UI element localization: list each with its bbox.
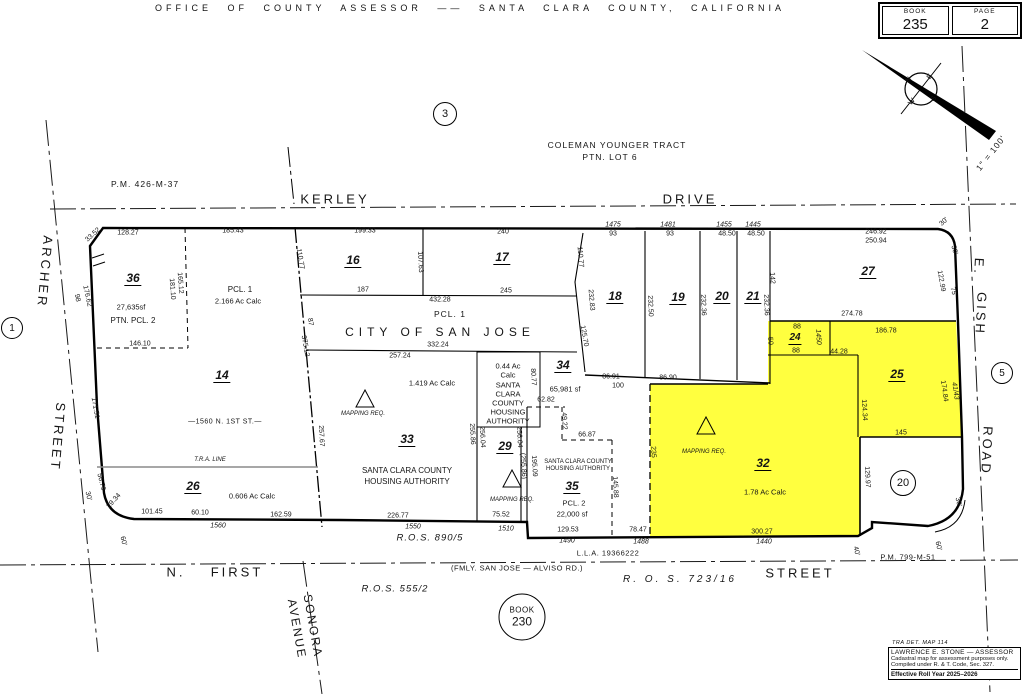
dimension-label: 232.36 — [699, 294, 707, 316]
address-label: 1550 — [405, 524, 421, 531]
roll-year-note: Effective Roll Year 2025–2026 — [891, 669, 1018, 678]
dimension-label: 250.94 — [865, 238, 886, 245]
dimension-label: 240 — [497, 229, 509, 236]
fmly-alviso-label: (FMLY. SAN JOSE — ALVISO RD.) — [451, 564, 583, 572]
parcel-16-number: 16 — [344, 254, 361, 268]
pm-426-label: P.M. 426-M-37 — [111, 180, 179, 189]
parcel-18-number: 18 — [606, 290, 623, 304]
compass-cross-line — [901, 63, 941, 114]
page-number: 2 — [953, 16, 1018, 33]
parcel-14-number: 14 — [213, 369, 230, 383]
street-label-gish: GISH — [973, 292, 988, 336]
dimension-label: 98 — [73, 293, 81, 302]
address-label: 1450 — [814, 329, 822, 345]
dimension-label: 88 — [793, 324, 801, 331]
address-label: 1445 — [745, 222, 761, 229]
parcel-25-number: 25 — [888, 368, 905, 382]
adjacent-page-ref-3: 3 — [433, 102, 457, 126]
parcel-27-number: 27 — [859, 265, 876, 279]
assessor-name: LAWRENCE E. STONE — ASSESSOR — [891, 649, 1018, 656]
dimension-label: 245 — [500, 288, 512, 295]
highlighted-parcels — [650, 321, 962, 536]
mapping-req-33: MAPPING REQ. — [341, 411, 385, 417]
ros-890-label: R.O.S. 890/5 — [397, 533, 464, 543]
adjacent-page-ref-1: 1 — [1, 317, 23, 339]
dimension-label: 186.78 — [875, 328, 896, 335]
dimension-label: (255.86) — [519, 453, 527, 479]
parcel-32-number: 32 — [754, 457, 771, 471]
book-230-number: 230 — [512, 616, 532, 628]
dimension-label: 256.04 — [515, 426, 523, 448]
parcel-29-number: 29 — [496, 440, 513, 454]
parcel-33-number: 33 — [398, 433, 415, 447]
dimension-label: 86.91 — [602, 374, 620, 381]
highlight-parcels-24-25-32 — [650, 321, 962, 536]
assessor-stamp: TRA DET. MAP 114 LAWRENCE E. STONE — ASS… — [888, 640, 1021, 680]
parcel-33-area: 1.419 Ac Calc — [409, 379, 455, 387]
dimension-label: 162.59 — [270, 512, 291, 519]
dimension-label: 100 — [612, 383, 624, 390]
mapping-req-triangle-29 — [503, 470, 521, 487]
north-arrow-blade — [862, 50, 996, 140]
street-label-n-first: N. — [167, 566, 186, 579]
edge-tick-1 — [92, 254, 104, 258]
adjacent-book-230-ref: BOOK 230 — [499, 594, 546, 641]
assessor-stamp-box: LAWRENCE E. STONE — ASSESSOR Cadastral m… — [888, 647, 1021, 680]
map-linework — [0, 0, 1024, 694]
parcel-35-area: 22,000 sf — [557, 510, 588, 518]
parcel-36-number: 36 — [124, 272, 141, 286]
dimension-label: 48.50 — [718, 231, 736, 238]
address-label: 1488 — [633, 539, 649, 546]
pcl-1-label: PCL. 1 — [434, 310, 466, 319]
parcel-14-east-line — [295, 227, 322, 527]
parcel-35-number: 35 — [563, 480, 580, 494]
map-label: SANTA — [496, 381, 520, 389]
dimension-label: 66.87 — [578, 432, 596, 439]
parcel-36-area: 27,635sf — [117, 303, 146, 311]
tra-det-map-note: TRA DET. MAP 114 — [892, 640, 1021, 646]
gish-road-centerline — [962, 46, 990, 692]
north-arrow — [862, 50, 996, 140]
dimension-label: 78.47 — [629, 527, 647, 534]
book-page-box: BOOK 235 PAGE 2 — [878, 2, 1022, 39]
n-1st-address-label: —1560 N. 1ST ST.— — [188, 419, 262, 426]
tract-label: COLEMAN YOUNGER TRACT — [548, 141, 687, 150]
parcel-32-area: 1.78 Ac Calc — [744, 488, 786, 496]
dimension-label: 300.27 — [751, 529, 772, 536]
book-label: BOOK — [883, 8, 948, 15]
dimension-label: 246.92 — [865, 229, 886, 236]
dimension-label: 86.90 — [659, 375, 677, 382]
parcel-26-area: 0.606 Ac Calc — [229, 492, 275, 500]
stamp-code-note: Compiled under R. & T. Code, Sec. 327. — [891, 662, 1018, 668]
dimension-label: 142 — [768, 272, 775, 284]
address-label: 1481 — [660, 222, 676, 229]
dimension-label: 48.50 — [747, 231, 765, 238]
street-label-first-street: STREET — [765, 567, 834, 580]
dimension-label: 62.82 — [537, 397, 555, 404]
parcel-36-east-dashed — [185, 228, 188, 348]
dimension-label: 226.77 — [387, 513, 408, 520]
dimension-label: 88 — [792, 348, 800, 355]
lla-label: L.L.A. 19366222 — [577, 549, 640, 557]
dimension-label: 332.24 — [427, 342, 448, 349]
dimension-label: 274.78 — [841, 311, 862, 318]
parcel-26-number: 26 — [184, 480, 201, 494]
tra-line-label: T.R.A. LINE — [194, 457, 225, 463]
parcel-34-number: 34 — [554, 359, 571, 373]
street-label-kerley: KERLEY — [300, 193, 369, 206]
parcel-33-owner: SANTA CLARA COUNTY — [362, 467, 452, 475]
mapping-req-triangle-33 — [356, 390, 374, 407]
page-title: OFFICE OF COUNTY ASSESSOR —— SANTA CLARA… — [155, 3, 785, 13]
dimension-label: 129.97 — [863, 466, 871, 488]
dimension-label: 107.63 — [416, 251, 424, 273]
address-label: 1475 — [605, 222, 621, 229]
address-label: 1440 — [756, 539, 772, 546]
parcel-34-area: 65,981 sf — [550, 385, 581, 393]
parcel-33-owner2: HOUSING AUTHORITY — [364, 478, 449, 486]
book-230-label: BOOK — [509, 607, 534, 615]
tract-lot-label: PTN. LOT 6 — [582, 153, 637, 162]
dimension-label: 257.24 — [389, 353, 410, 360]
dimension-label: 146.10 — [129, 341, 150, 348]
ros-555-label: R.O.S. 555/2 — [362, 584, 429, 594]
assessor-map-page: OFFICE OF COUNTY ASSESSOR —— SANTA CLARA… — [0, 0, 1024, 694]
dimension-label: 93 — [609, 231, 617, 238]
map-label: HOUSING — [490, 408, 525, 416]
dimension-label: 49.22 — [560, 412, 568, 430]
street-label-gish-road: ROAD — [979, 426, 995, 476]
page-cell: PAGE 2 — [952, 6, 1019, 35]
parcel-29-owner: AUTHORITY — [486, 417, 529, 425]
dimension-label: 232.50 — [646, 295, 654, 317]
dimension-label: 145 — [895, 430, 907, 437]
dimension-label: 256.04 — [478, 426, 486, 448]
mapping-req-29: MAPPING REQ. — [490, 497, 534, 503]
adjacent-page-ref-5: 5 — [991, 362, 1013, 384]
dimension-label: 129.53 — [557, 527, 578, 534]
book-cell: BOOK 235 — [882, 6, 949, 35]
dimension-label: 257.67 — [317, 425, 325, 447]
dimension-label: 50 — [766, 337, 773, 345]
page-label: PAGE — [953, 8, 1018, 15]
dimension-label: 185.43 — [222, 228, 243, 235]
dimension-label: 44.28 — [830, 349, 848, 356]
dimension-label: 145.88 — [611, 476, 619, 498]
dimension-label: 75.52 — [492, 512, 510, 519]
dimension-label: 235 — [649, 446, 657, 458]
parcel-24-number: 24 — [788, 333, 801, 345]
dimension-label: 93 — [666, 231, 674, 238]
dimension-label: 101.45 — [141, 509, 162, 516]
dimension-label: 87 — [306, 318, 314, 327]
parcel-20-number: 20 — [713, 290, 730, 304]
street-label-first: FIRST — [211, 566, 264, 579]
adjacent-page-ref-20: 20 — [890, 470, 916, 496]
dimension-label: 187 — [357, 287, 369, 294]
map-label: 0.44 Ac — [495, 362, 520, 370]
map-label: COUNTY — [492, 399, 524, 407]
dimension-label: 199.33 — [354, 228, 375, 235]
parcel-19-number: 19 — [669, 291, 686, 305]
dimension-label: 195.09 — [530, 455, 538, 477]
parcel-35-owner2: HOUSING AUTHORITY — [546, 466, 610, 472]
address-label: 1455 — [716, 222, 732, 229]
dimension-label: 80.77 — [529, 368, 537, 386]
city-of-san-jose-label: CITY OF SAN JOSE — [345, 326, 535, 338]
parcel-36-note: PTN. PCL. 2 — [111, 317, 156, 325]
kerley-drive-centerline — [50, 204, 1016, 209]
parcel-35-owner: SANTA CLARA COUNTY — [544, 459, 612, 465]
book-number: 235 — [883, 16, 948, 33]
dimension-label: 255.86 — [468, 423, 476, 445]
parcel-21-number: 21 — [744, 290, 761, 304]
map-label: CLARA — [495, 390, 520, 398]
archer-street-centerline — [46, 120, 98, 652]
dimension-label: 432.28 — [429, 297, 450, 304]
dimension-label: 232.36 — [762, 294, 770, 316]
parcel-35-note: PCL. 2 — [563, 499, 586, 507]
dimension-label: 181.10 — [168, 278, 176, 300]
ros-723-label: R. O. S. 723/16 — [623, 575, 737, 585]
mapping-req-32: MAPPING REQ. — [682, 449, 726, 455]
address-label: 1560 — [210, 523, 226, 530]
address-label: 1510 — [498, 526, 514, 533]
edge-tick-2 — [93, 262, 105, 266]
address-label: 1490 — [559, 538, 575, 545]
parcel-17-number: 17 — [493, 251, 510, 265]
parcel-29-area: Calc — [500, 371, 515, 379]
parcel-14-note: PCL. 1 — [228, 286, 252, 294]
dimension-label: 165.12 — [176, 272, 184, 294]
pm-799-label: P.M. 799-M-51 — [880, 553, 935, 561]
dimension-label: 128.27 — [117, 230, 138, 237]
survey-tie-line — [288, 147, 294, 204]
street-label-drive: DRIVE — [663, 193, 718, 206]
dimension-label: 124.34 — [860, 399, 868, 421]
parcel-14-area: 2.166 Ac Calc — [215, 297, 261, 305]
street-label-e-gish: E. — [972, 258, 986, 277]
dimension-label: 60.10 — [191, 510, 209, 517]
